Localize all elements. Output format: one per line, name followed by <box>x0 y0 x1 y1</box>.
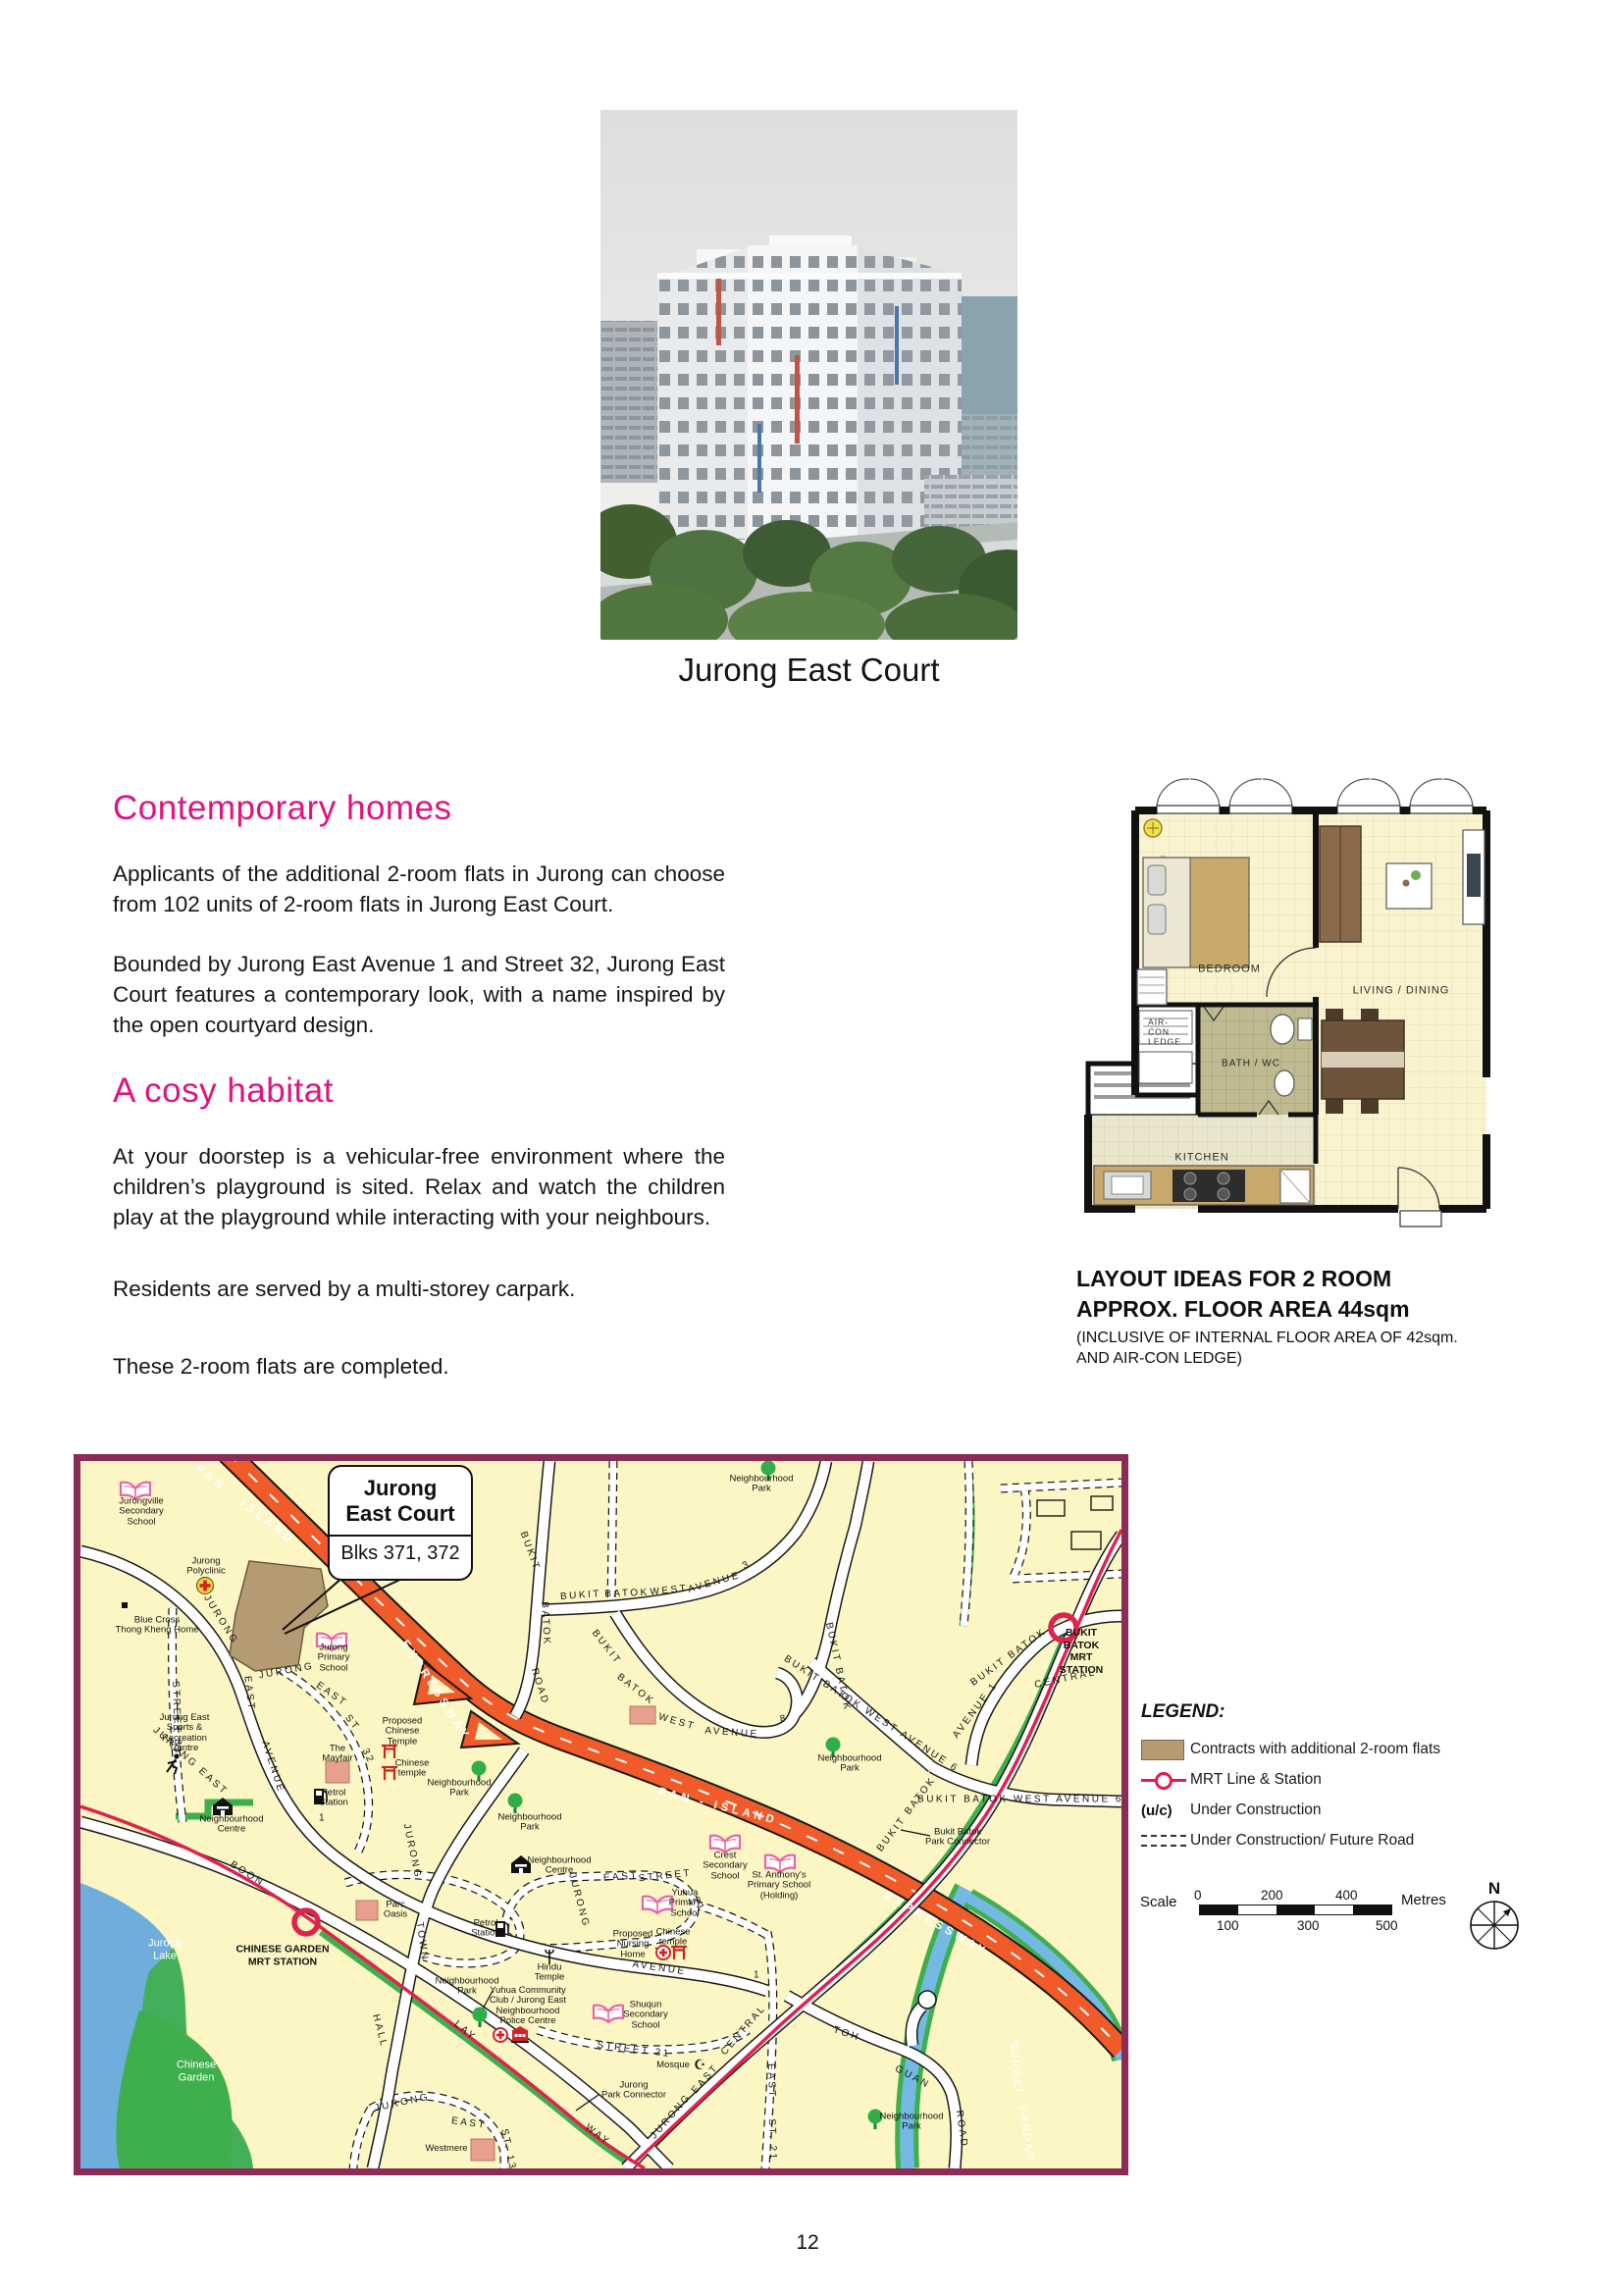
room-label-bedroom: BEDROOM <box>1198 964 1261 976</box>
mrt-line-icon <box>1141 1771 1186 1789</box>
map-place-label: Shuqun Secondary School <box>623 2000 667 2030</box>
legend-item: Under Construction/ Future Road <box>1141 1830 1573 1852</box>
scale-tick: 300 <box>1297 1918 1320 1933</box>
map-place-label: Bukit Batok Park Connector <box>925 1828 990 1849</box>
scale-tick: 200 <box>1261 1888 1283 1903</box>
room-label-bath-wc: BATH / WC <box>1222 1058 1280 1070</box>
scale-tick: 0 <box>1194 1888 1202 1903</box>
legend-title: LEGEND: <box>1141 1701 1573 1723</box>
map-place-label: Jurong Polyclinic <box>186 1557 226 1578</box>
brochure-page: Jurong East Court Contemporary homes App… <box>0 0 1615 2296</box>
location-map: ☪ Jurong East Court Blks 371, 372 PAN - … <box>74 1454 1128 2175</box>
floor-plan-caption-line: AND AIR-CON LEDGE) <box>1076 1348 1518 1369</box>
paragraph: Residents are served by a multi-storey c… <box>113 1274 725 1304</box>
floor-plan-caption-line: (INCLUSIVE OF INTERNAL FLOOR AREA OF 42s… <box>1076 1328 1518 1348</box>
map-place-label: Neighbourhood Centre <box>200 1815 264 1836</box>
map-place-label: Neighbourhood Park <box>436 1977 499 1998</box>
building-photo <box>600 110 1017 640</box>
map-road-label: BATOK <box>604 1588 650 1600</box>
scale-bar <box>1199 1905 1392 1915</box>
legend-item: MRT Line & Station <box>1141 1769 1573 1791</box>
compass-north-label: N <box>1488 1879 1500 1898</box>
legend-item: (u/c) Under Construction <box>1141 1800 1573 1821</box>
map-place-label: Neighbourhood Park <box>498 1813 562 1834</box>
mrt-station-label: BUKIT BATOK MRT STATION <box>1060 1627 1104 1676</box>
floor-plan-drawing <box>1074 773 1526 1252</box>
legend-item: Contracts with additional 2-room flats <box>1141 1739 1573 1760</box>
legend-item-label: MRT Line & Station <box>1190 1771 1322 1789</box>
room-label-kitchen: KITCHEN <box>1174 1152 1228 1165</box>
map-place-label: Parc Oasis <box>384 1901 407 1921</box>
paragraph: Bounded by Jurong East Avenue 1 and Stre… <box>113 949 725 1040</box>
page-number: 12 <box>0 2231 1615 2255</box>
map-area-label: Chinese Garden <box>177 2059 216 2083</box>
map-place-label: Chinese temple <box>656 1928 691 1949</box>
scale-tick: 400 <box>1335 1888 1358 1903</box>
site-callout: Jurong East Court Blks 371, 372 <box>328 1465 473 1581</box>
photo-caption: Jurong East Court <box>600 652 1017 689</box>
blue-cross-home-marker <box>122 1602 128 1608</box>
map-place-label: Jurong Park Connector <box>601 2081 666 2102</box>
map-place-label: Jurong Primary School <box>318 1643 350 1673</box>
map-road-label: BATOK <box>539 1601 551 1646</box>
floor-plan-caption-line: APPROX. FLOOR AREA 44sqm <box>1076 1294 1518 1325</box>
map-place-label: Neighbourhood Centre <box>528 1856 592 1877</box>
mrt-station-label: CHINESE GARDEN MRT STATION <box>235 1943 329 1967</box>
section-heading-cosy-habitat: A cosy habitat <box>113 1073 725 1108</box>
scale-unit: Metres <box>1401 1892 1446 1908</box>
map-place-label: Neighbourhood Park <box>818 1754 882 1775</box>
map-water-label: Jurong Lake <box>148 1937 182 1961</box>
future-road-icon <box>1141 1835 1186 1847</box>
map-place-label: Yuhua Community Club / Jurong East Neigh… <box>490 1986 566 2027</box>
map-road-label: EAST <box>765 2063 777 2099</box>
scale-tick: 500 <box>1376 1918 1398 1933</box>
room-label-living-dining: LIVING / DINING <box>1353 985 1450 998</box>
scale-label: Scale <box>1140 1894 1177 1910</box>
map-road-label: 8 <box>779 1713 789 1725</box>
map-place-label: Neighbourhood Park <box>730 1475 794 1495</box>
map-legend: LEGEND: Contracts with additional 2-room… <box>1141 1701 1573 1860</box>
map-road-label: ST. 21 <box>766 2118 779 2162</box>
site-swatch <box>1141 1740 1184 1760</box>
map-road-label: 1 <box>754 1970 761 1981</box>
map-place-label: Petrol Station <box>471 1919 500 1940</box>
map-place-label: Proposed Chinese Temple <box>383 1716 423 1747</box>
callout-blocks: Blks 371, 372 <box>330 1542 471 1565</box>
paragraph: Applicants of the additional 2-room flat… <box>113 859 725 919</box>
map-place-label: The Mayfair <box>322 1745 352 1765</box>
map-place-label: Hindu Temple <box>535 1963 565 1984</box>
article-column: Contemporary homes Applicants of the add… <box>113 791 725 1411</box>
scale-tick: 100 <box>1217 1918 1239 1933</box>
section-heading-contemporary-homes: Contemporary homes <box>113 791 725 825</box>
legend-item-label: Contracts with additional 2-room flats <box>1190 1741 1440 1758</box>
callout-divider <box>330 1535 471 1537</box>
map-place-label: Proposed Nursing Home <box>613 1929 653 1959</box>
map-place-label: St. Anthony's Primary School (Holding) <box>748 1870 810 1901</box>
map-scale: Scale 0 200 400 Metres 100 300 500 <box>1138 1886 1609 1940</box>
map-place-label: Jurongville Secondary School <box>119 1496 163 1527</box>
callout-title: Jurong East Court <box>330 1476 471 1527</box>
map-place-label: Crest Secondary School <box>703 1851 747 1881</box>
legend-item-label: Under Construction <box>1190 1801 1322 1819</box>
map-place-label: Chinese temple <box>395 1759 430 1780</box>
map-road-label: BUKIT BATOK WEST AVENUE 6 <box>917 1795 1123 1805</box>
map-road-label: 1 <box>319 1813 327 1824</box>
map-place-label: Blue Cross Thong Kheng Home <box>115 1616 198 1637</box>
map-place-label: Westmere <box>425 2144 467 2154</box>
legend-item-label: Under Construction/ Future Road <box>1190 1832 1414 1850</box>
floor-plan-caption-line: LAYOUT IDEAS FOR 2 ROOM <box>1076 1264 1518 1294</box>
room-label-aircon-ledge: AIR- CON LEDGE <box>1148 1018 1181 1046</box>
map-place-label: Jurong East Sports & Recreation Centre <box>160 1713 210 1754</box>
map-place-label: Petrol Station <box>319 1789 348 1809</box>
floor-plan: BEDROOM LIVING / DINING BATH / WC KITCHE… <box>1074 773 1526 1252</box>
jurong-east-court-site <box>230 1561 328 1671</box>
map-place-label: Mosque <box>656 2061 690 2070</box>
map-place-label: Neighbourhood Park <box>428 1779 492 1800</box>
map-place-label: Yuhua Primary School <box>669 1888 702 1918</box>
compass-rose: N <box>1460 1876 1529 1958</box>
paragraph: These 2-room flats are completed. <box>113 1351 725 1382</box>
paragraph: At your doorstep is a vehicular-free env… <box>113 1141 725 1232</box>
under-construction-symbol: (u/c) <box>1141 1802 1172 1819</box>
map-place-label: Neighbourhood Park <box>880 2113 944 2133</box>
floor-plan-caption: LAYOUT IDEAS FOR 2 ROOM APPROX. FLOOR AR… <box>1076 1264 1518 1369</box>
